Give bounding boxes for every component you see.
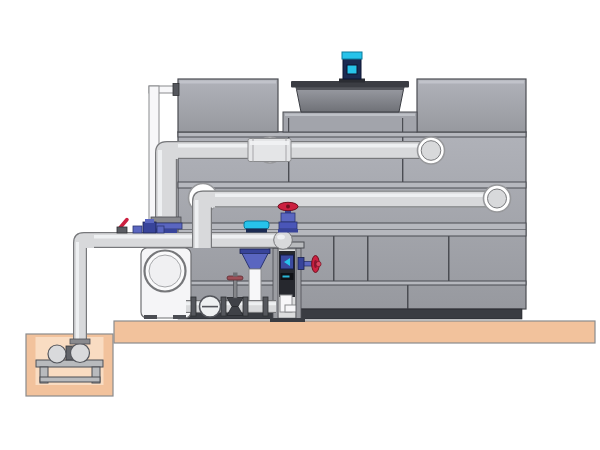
sump-pipe-flange (70, 339, 90, 344)
fan-cowl (291, 81, 409, 112)
pump-volute (141, 248, 191, 319)
pipe-dome-cap (274, 231, 293, 250)
elbow-into-tower (488, 189, 507, 208)
sump-pump-cylinder (48, 345, 66, 363)
gate-valve-handle (227, 276, 243, 280)
fan-motor (339, 52, 365, 83)
concrete-slab (114, 321, 595, 343)
globe-valve-red-handwheel (278, 202, 298, 232)
cooling-tower-diagram (0, 0, 600, 450)
ball-valve-red-lever (117, 220, 127, 234)
standpipe-wall-flange (173, 84, 179, 96)
tower-top-right-block (417, 79, 526, 132)
motor-top-cap (342, 52, 362, 59)
motor-front-window (347, 65, 357, 74)
sump-pump-cylinder (71, 344, 90, 363)
diagram-stage (0, 0, 600, 450)
elbow-into-tower (421, 141, 441, 161)
pump-stand-shelf (36, 360, 103, 367)
sensor-cap (244, 221, 269, 233)
tower-top-left-block (178, 79, 278, 132)
